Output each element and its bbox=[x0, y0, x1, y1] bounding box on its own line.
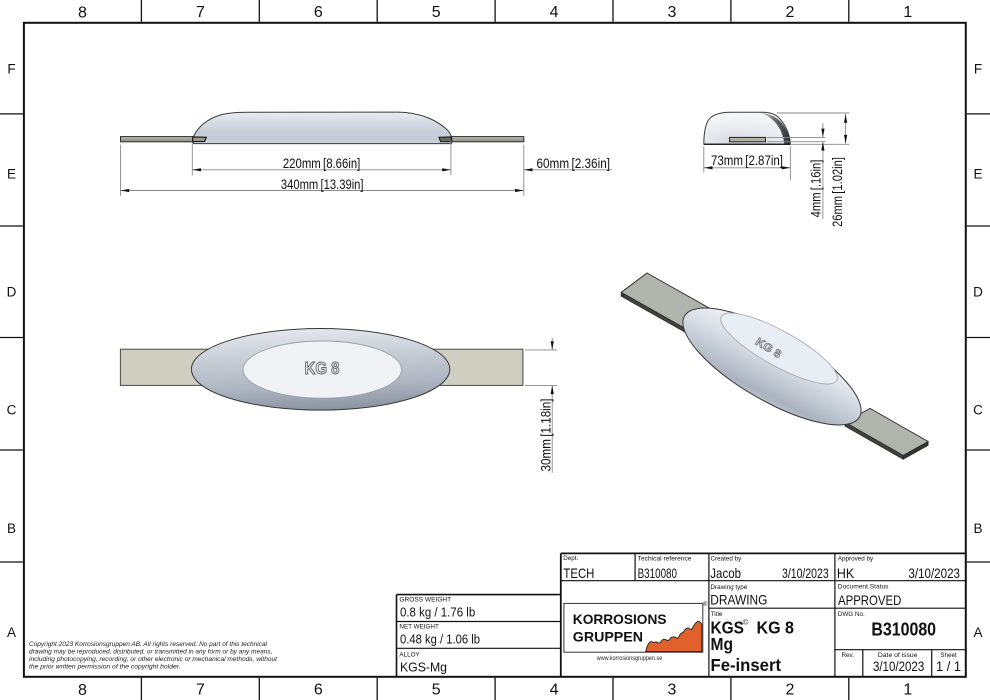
svg-text:®: ® bbox=[703, 601, 708, 608]
svg-text:3/10/2023: 3/10/2023 bbox=[782, 565, 829, 581]
svg-text:4: 4 bbox=[550, 682, 559, 699]
svg-text:73mm [2.87in]: 73mm [2.87in] bbox=[711, 153, 783, 168]
svg-text:Drawing type: Drawing type bbox=[711, 584, 748, 591]
svg-text:Dept.: Dept. bbox=[563, 555, 578, 562]
svg-text:D: D bbox=[973, 285, 983, 300]
svg-text:F: F bbox=[7, 62, 15, 77]
svg-text:8: 8 bbox=[78, 682, 87, 699]
svg-text:26mm [1.02in]: 26mm [1.02in] bbox=[830, 157, 845, 227]
svg-text:www.korrosionsgruppen.se: www.korrosionsgruppen.se bbox=[596, 655, 663, 662]
svg-text:Document Status: Document Status bbox=[838, 584, 889, 591]
svg-text:DRAWING: DRAWING bbox=[710, 591, 767, 607]
svg-text:7: 7 bbox=[196, 4, 205, 21]
svg-text:the prior written permission o: the prior written permission of the copy… bbox=[29, 663, 181, 670]
svg-text:GRUPPEN: GRUPPEN bbox=[573, 630, 643, 645]
svg-text:5: 5 bbox=[432, 682, 441, 699]
svg-text:8: 8 bbox=[78, 5, 87, 22]
svg-text:APPROVED: APPROVED bbox=[838, 592, 901, 608]
svg-text:Mg: Mg bbox=[711, 634, 734, 654]
svg-text:KORROSIONS: KORROSIONS bbox=[573, 612, 667, 627]
svg-text:TECH: TECH bbox=[563, 565, 594, 581]
svg-text:3: 3 bbox=[668, 4, 677, 21]
svg-text:Created by: Created by bbox=[711, 555, 743, 562]
svg-text:1: 1 bbox=[903, 4, 912, 21]
svg-text:ALLOY: ALLOY bbox=[399, 652, 420, 659]
svg-text:220mm [8.66in]: 220mm [8.66in] bbox=[283, 156, 361, 171]
svg-text:B: B bbox=[973, 521, 982, 536]
svg-text:KG 8: KG 8 bbox=[305, 358, 340, 378]
svg-text:2: 2 bbox=[785, 682, 794, 699]
svg-text:30mm [1.18in]: 30mm [1.18in] bbox=[538, 399, 553, 472]
svg-text:E: E bbox=[7, 167, 16, 182]
svg-text:340mm [13.39in]: 340mm [13.39in] bbox=[281, 177, 364, 192]
svg-text:3: 3 bbox=[668, 682, 677, 699]
svg-text:C: C bbox=[7, 403, 17, 418]
svg-text:HK: HK bbox=[837, 565, 855, 581]
svg-text:D: D bbox=[7, 285, 17, 300]
svg-text:B310080: B310080 bbox=[871, 619, 936, 640]
svg-text:Fe-insert: Fe-insert bbox=[711, 655, 782, 675]
svg-text:5: 5 bbox=[432, 4, 441, 21]
svg-text:60mm [2.36in]: 60mm [2.36in] bbox=[537, 156, 611, 171]
svg-text:F: F bbox=[974, 62, 982, 77]
svg-text:0.48 kg / 1.06 lb: 0.48 kg / 1.06 lb bbox=[400, 632, 480, 647]
svg-text:B310080: B310080 bbox=[638, 565, 678, 581]
svg-text:GROSS WEIGHT: GROSS WEIGHT bbox=[399, 596, 451, 603]
svg-text:4mm [.16in]: 4mm [.16in] bbox=[809, 160, 824, 218]
svg-text:Copyright 2023 Korrosionsgrupp: Copyright 2023 Korrosionsgruppen AB. All… bbox=[29, 641, 268, 648]
svg-text:E: E bbox=[973, 167, 982, 182]
svg-text:B: B bbox=[7, 521, 16, 536]
svg-text:3/10/2023: 3/10/2023 bbox=[873, 658, 924, 674]
svg-text:6: 6 bbox=[314, 4, 323, 21]
svg-text:3/10/2023: 3/10/2023 bbox=[908, 565, 960, 581]
svg-text:A: A bbox=[973, 625, 982, 640]
svg-text:KGS-Mg: KGS-Mg bbox=[400, 659, 447, 674]
svg-text:Approved by: Approved by bbox=[838, 555, 874, 562]
svg-text:4: 4 bbox=[550, 4, 559, 21]
svg-text:KG 8: KG 8 bbox=[757, 618, 795, 638]
svg-text:©: © bbox=[743, 618, 749, 627]
svg-text:drawing may be reproduced, dis: drawing may be reproduced, distributed, … bbox=[29, 649, 273, 656]
svg-text:C: C bbox=[973, 403, 983, 418]
svg-text:DWG No.: DWG No. bbox=[838, 611, 865, 618]
svg-text:1: 1 bbox=[903, 682, 912, 699]
svg-text:NET WEIGHT: NET WEIGHT bbox=[399, 624, 439, 631]
svg-text:1 / 1: 1 / 1 bbox=[936, 658, 961, 674]
svg-text:Techical reference: Techical reference bbox=[638, 555, 692, 562]
svg-text:A: A bbox=[7, 625, 16, 640]
svg-text:Rev.: Rev. bbox=[842, 652, 855, 659]
svg-text:0.8 kg / 1.76 lb: 0.8 kg / 1.76 lb bbox=[400, 605, 475, 620]
svg-text:6: 6 bbox=[314, 682, 323, 699]
svg-text:Jacob: Jacob bbox=[710, 565, 741, 581]
svg-text:7: 7 bbox=[196, 682, 205, 699]
svg-text:including photocopying, record: including photocopying, recording, or ot… bbox=[29, 656, 278, 663]
svg-text:2: 2 bbox=[785, 4, 794, 21]
